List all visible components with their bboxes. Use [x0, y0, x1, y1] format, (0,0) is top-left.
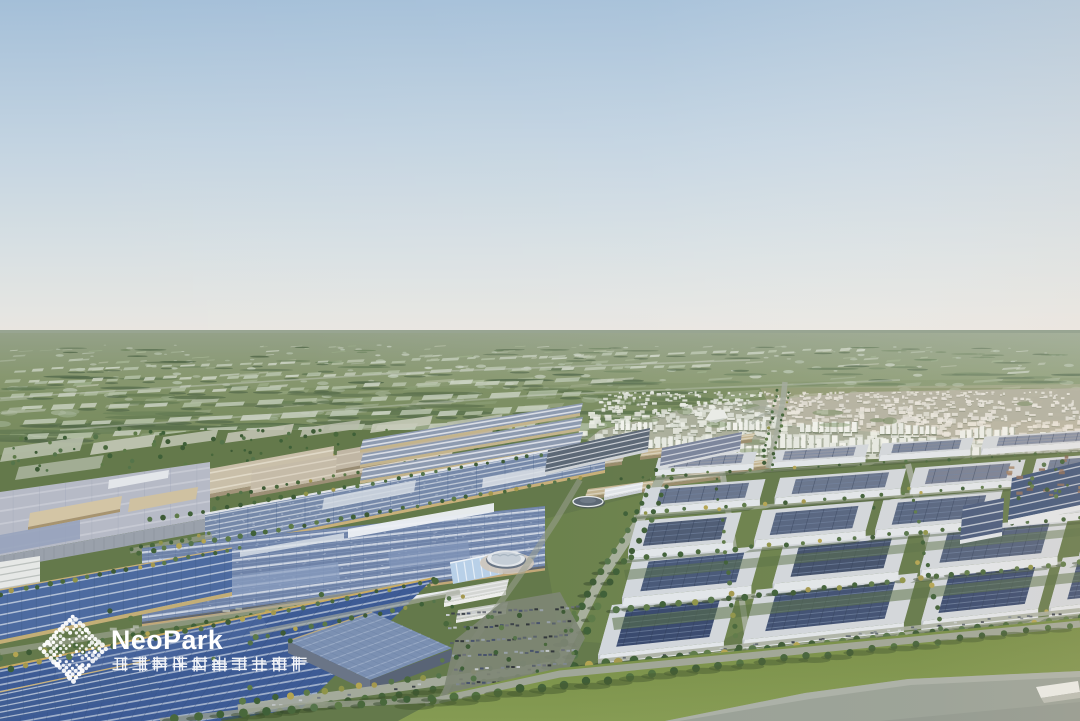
svg-text:NeoPark: NeoPark — [111, 625, 223, 655]
